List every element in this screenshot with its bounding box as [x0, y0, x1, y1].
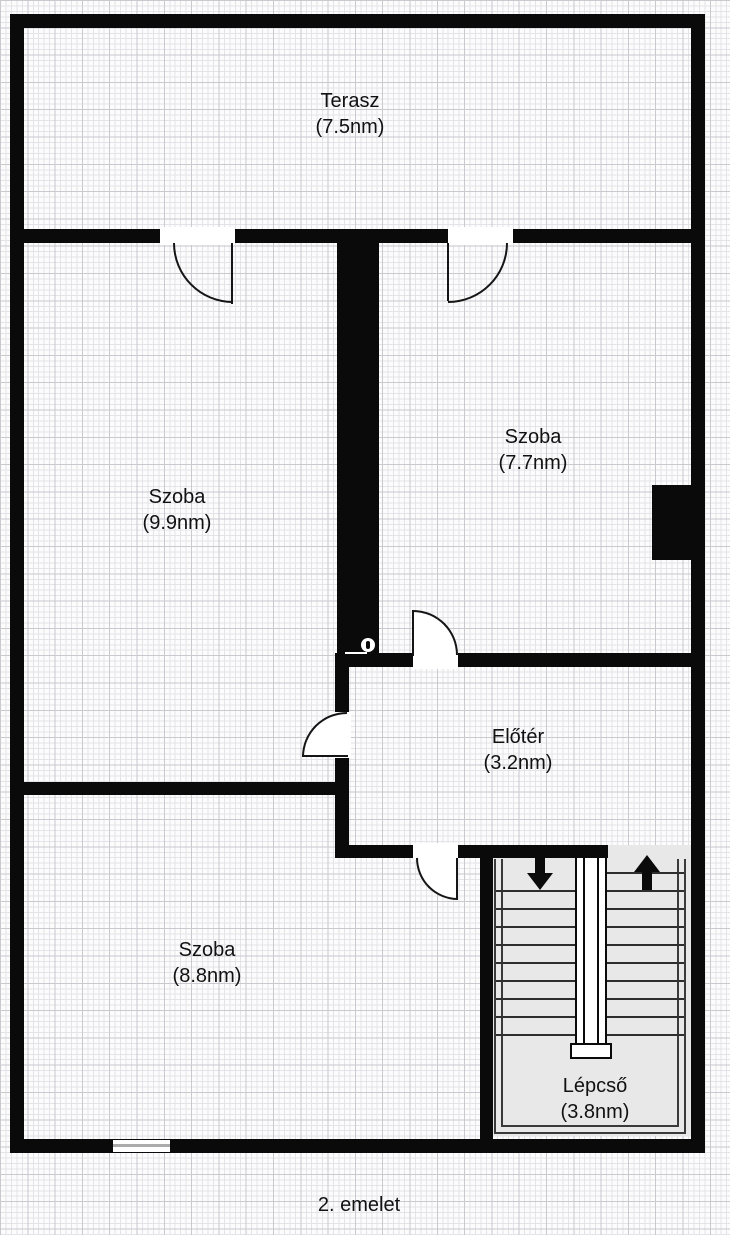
room-area: (9.9nm) — [143, 510, 212, 536]
wall-middle-spine — [337, 243, 379, 655]
door-eloter-szoba-right-arc — [413, 610, 458, 655]
pivot-underline — [345, 652, 367, 654]
stair-tread — [607, 890, 684, 892]
wall-eloter-top-right — [458, 653, 691, 667]
stair-tread — [607, 944, 684, 946]
room-area: (7.7nm) — [499, 450, 568, 476]
room-area: (8.8nm) — [173, 963, 242, 989]
room-area: (3.2nm) — [484, 750, 553, 776]
stairwell-railing-inner — [583, 854, 599, 1046]
door-terrace-right-arc — [448, 243, 508, 303]
floor-label-text: 2. emelet — [318, 1192, 400, 1218]
room-label-eloter: Előtér (3.2nm) — [484, 724, 553, 776]
window-bottom-icon — [113, 1140, 170, 1152]
wall-eloter-bottom-left — [335, 845, 413, 858]
down-arrow-head-icon — [527, 873, 553, 890]
stair-tread — [607, 962, 684, 964]
door-terrace-left-leaf — [231, 243, 233, 304]
stair-tread — [607, 980, 684, 982]
up-arrow-icon — [642, 872, 652, 890]
door-eloter-stairs-leaf — [456, 858, 458, 900]
door-eloter-szoba-left-arc — [302, 712, 347, 757]
stair-tread — [496, 998, 575, 1000]
wall-outer-top — [10, 14, 705, 28]
wall-outer-right — [691, 14, 705, 1153]
room-label-szoba-right: Szoba (7.7nm) — [499, 424, 568, 476]
room-area: (3.8nm) — [561, 1099, 630, 1125]
wall-terrace-divider-2 — [235, 229, 448, 243]
room-name: Szoba — [499, 424, 568, 450]
room-name: Szoba — [173, 937, 242, 963]
down-arrow-icon — [535, 856, 545, 874]
stair-tread — [496, 1016, 575, 1018]
floor-plan-canvas: Terasz (7.5nm) Szoba (9.9nm) Szoba (7.7n… — [0, 0, 730, 1235]
room-label-szoba-bottom: Szoba (8.8nm) — [173, 937, 242, 989]
room-label-terasz: Terasz (7.5nm) — [316, 88, 385, 140]
wall-eloter-top-left — [345, 653, 413, 667]
door-pivot-marker-icon — [361, 638, 375, 652]
stair-tread — [496, 1034, 575, 1036]
door-eloter-szoba-right-leaf — [412, 610, 414, 656]
wall-outer-left — [10, 14, 24, 1153]
wall-terrace-divider-3 — [513, 229, 705, 243]
door-eloter-stairs-arc — [416, 858, 458, 900]
stair-tread — [607, 926, 684, 928]
room-area: (7.5nm) — [316, 114, 385, 140]
stair-tread — [496, 944, 575, 946]
stair-tread — [607, 998, 684, 1000]
room-name: Előtér — [484, 724, 553, 750]
stair-tread — [496, 926, 575, 928]
wall-room-divider — [24, 782, 335, 795]
up-arrow-head-icon — [634, 855, 660, 872]
stair-tread — [607, 908, 684, 910]
shaft-block — [652, 485, 691, 560]
door-terrace-right-leaf — [447, 243, 449, 301]
room-name: Terasz — [316, 88, 385, 114]
wall-stair-left — [480, 845, 493, 1139]
stair-tread — [607, 1016, 684, 1018]
wall-terrace-divider-1 — [10, 229, 160, 243]
room-label-szoba-left: Szoba (9.9nm) — [143, 484, 212, 536]
stair-tread — [496, 962, 575, 964]
stairwell-railing-cap — [570, 1043, 612, 1059]
floor-label: 2. emelet — [318, 1192, 400, 1218]
stair-tread — [607, 1034, 684, 1036]
stair-tread — [496, 908, 575, 910]
door-eloter-szoba-left-leaf — [302, 755, 348, 757]
room-label-lepcso: Lépcső (3.8nm) — [561, 1073, 630, 1125]
stair-tread — [496, 890, 575, 892]
stair-tread — [496, 980, 575, 982]
wall-eloter-left-upper — [335, 653, 349, 713]
wall-eloter-left-lower — [335, 757, 349, 858]
room-name: Lépcső — [561, 1073, 630, 1099]
room-name: Szoba — [143, 484, 212, 510]
door-terrace-left-arc — [173, 243, 233, 303]
